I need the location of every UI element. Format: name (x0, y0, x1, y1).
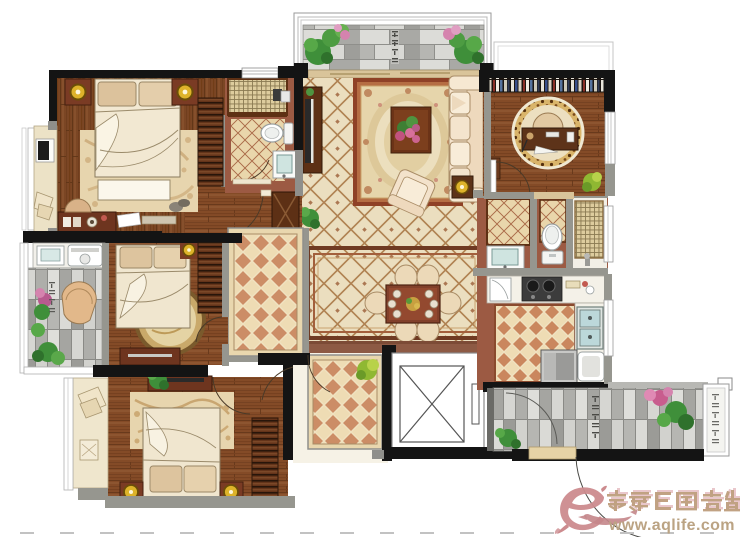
svg-text:www.aqlife.com: www.aqlife.com (608, 517, 735, 534)
